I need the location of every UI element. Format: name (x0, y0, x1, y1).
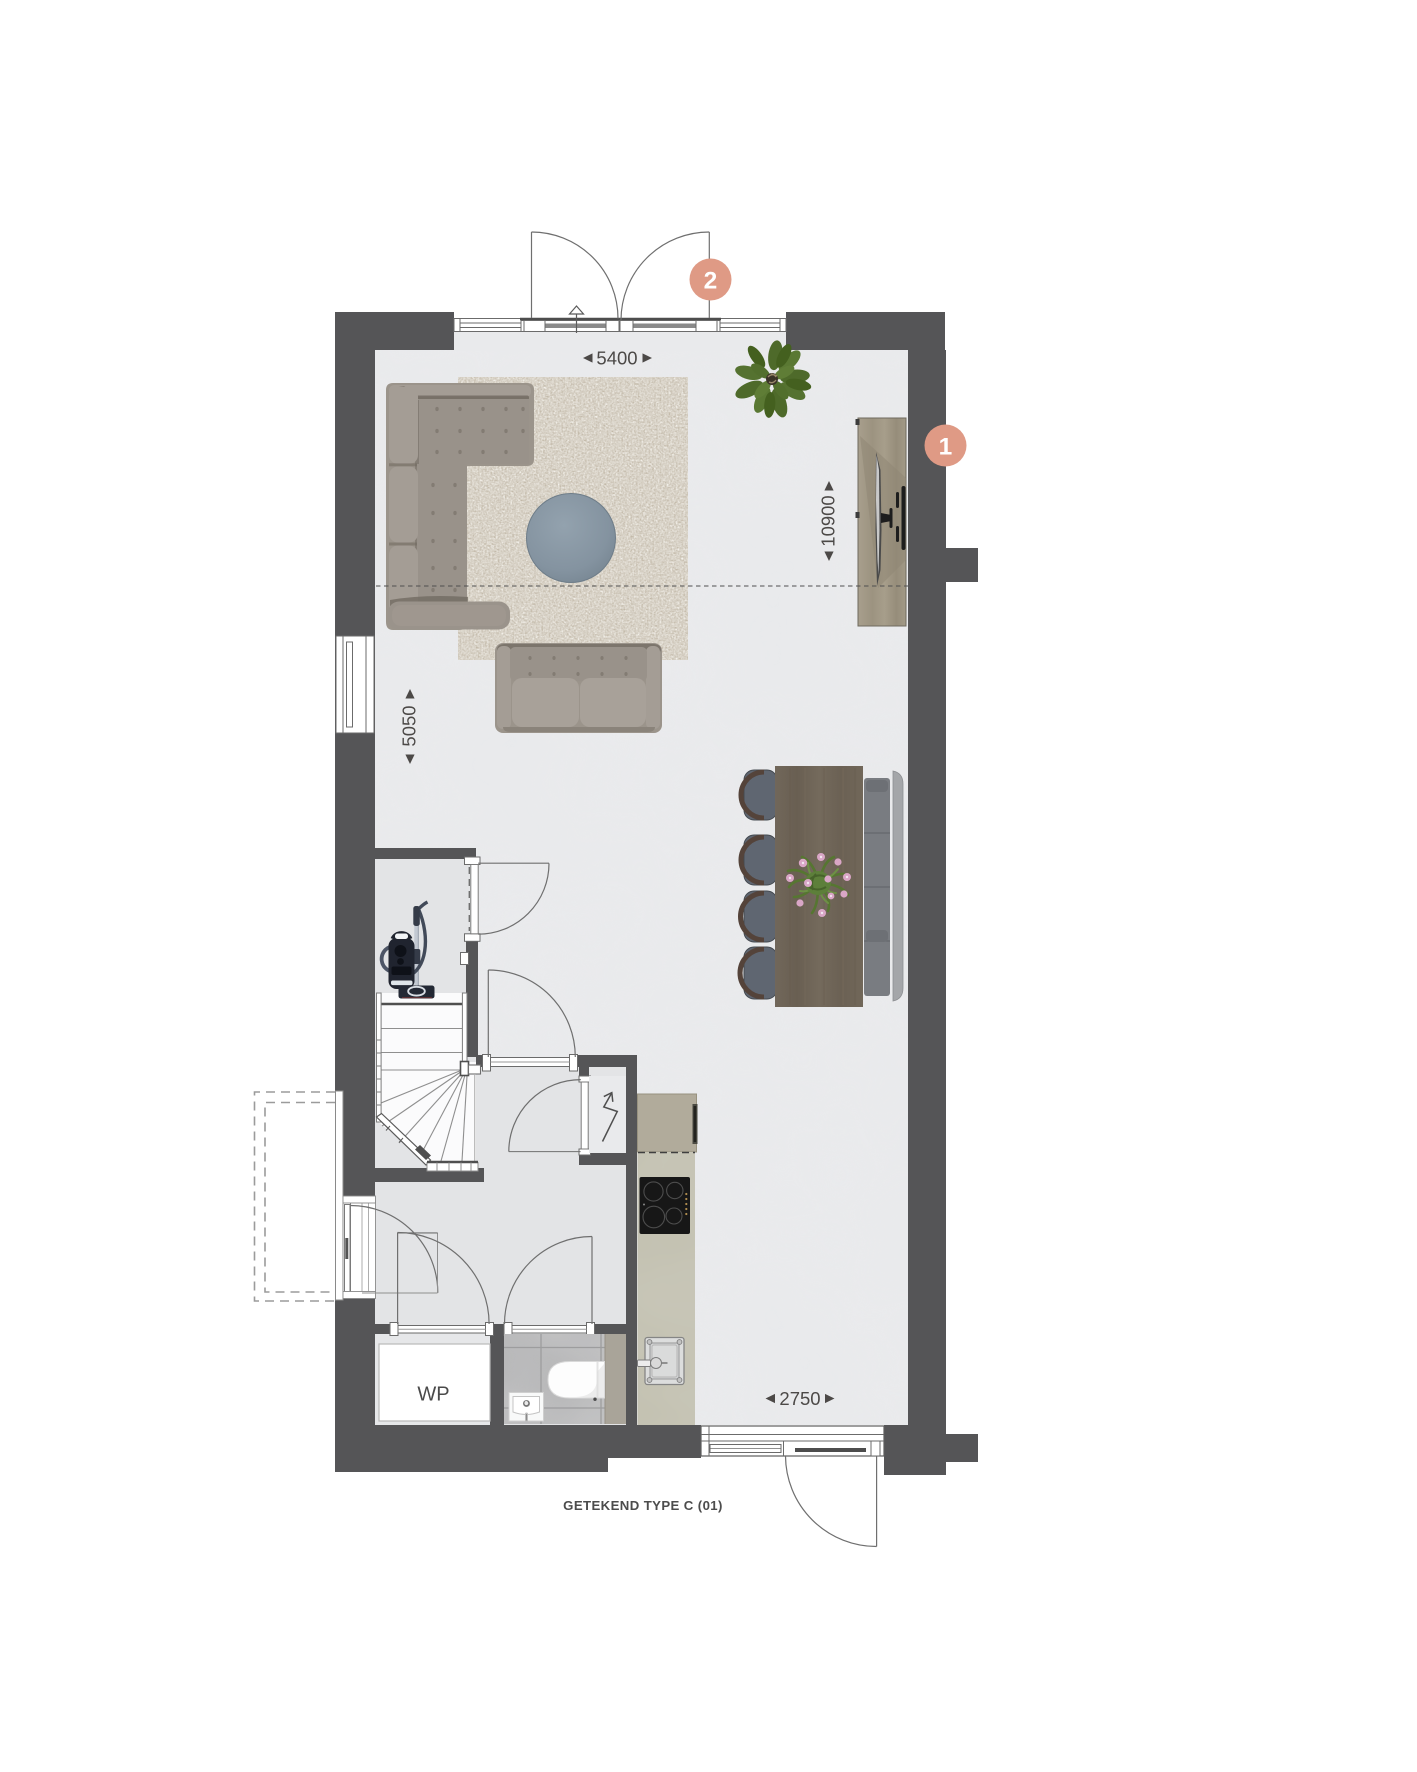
svg-text:10900: 10900 (818, 495, 839, 546)
svg-text:5400: 5400 (596, 348, 637, 369)
svg-text:2: 2 (704, 267, 718, 294)
svg-text:WP: WP (417, 1384, 449, 1406)
svg-text:1: 1 (939, 433, 953, 460)
svg-text:5050: 5050 (399, 705, 420, 746)
svg-text:GETEKEND TYPE C (01): GETEKEND TYPE C (01) (563, 1498, 723, 1513)
svg-text:2750: 2750 (779, 1388, 820, 1409)
